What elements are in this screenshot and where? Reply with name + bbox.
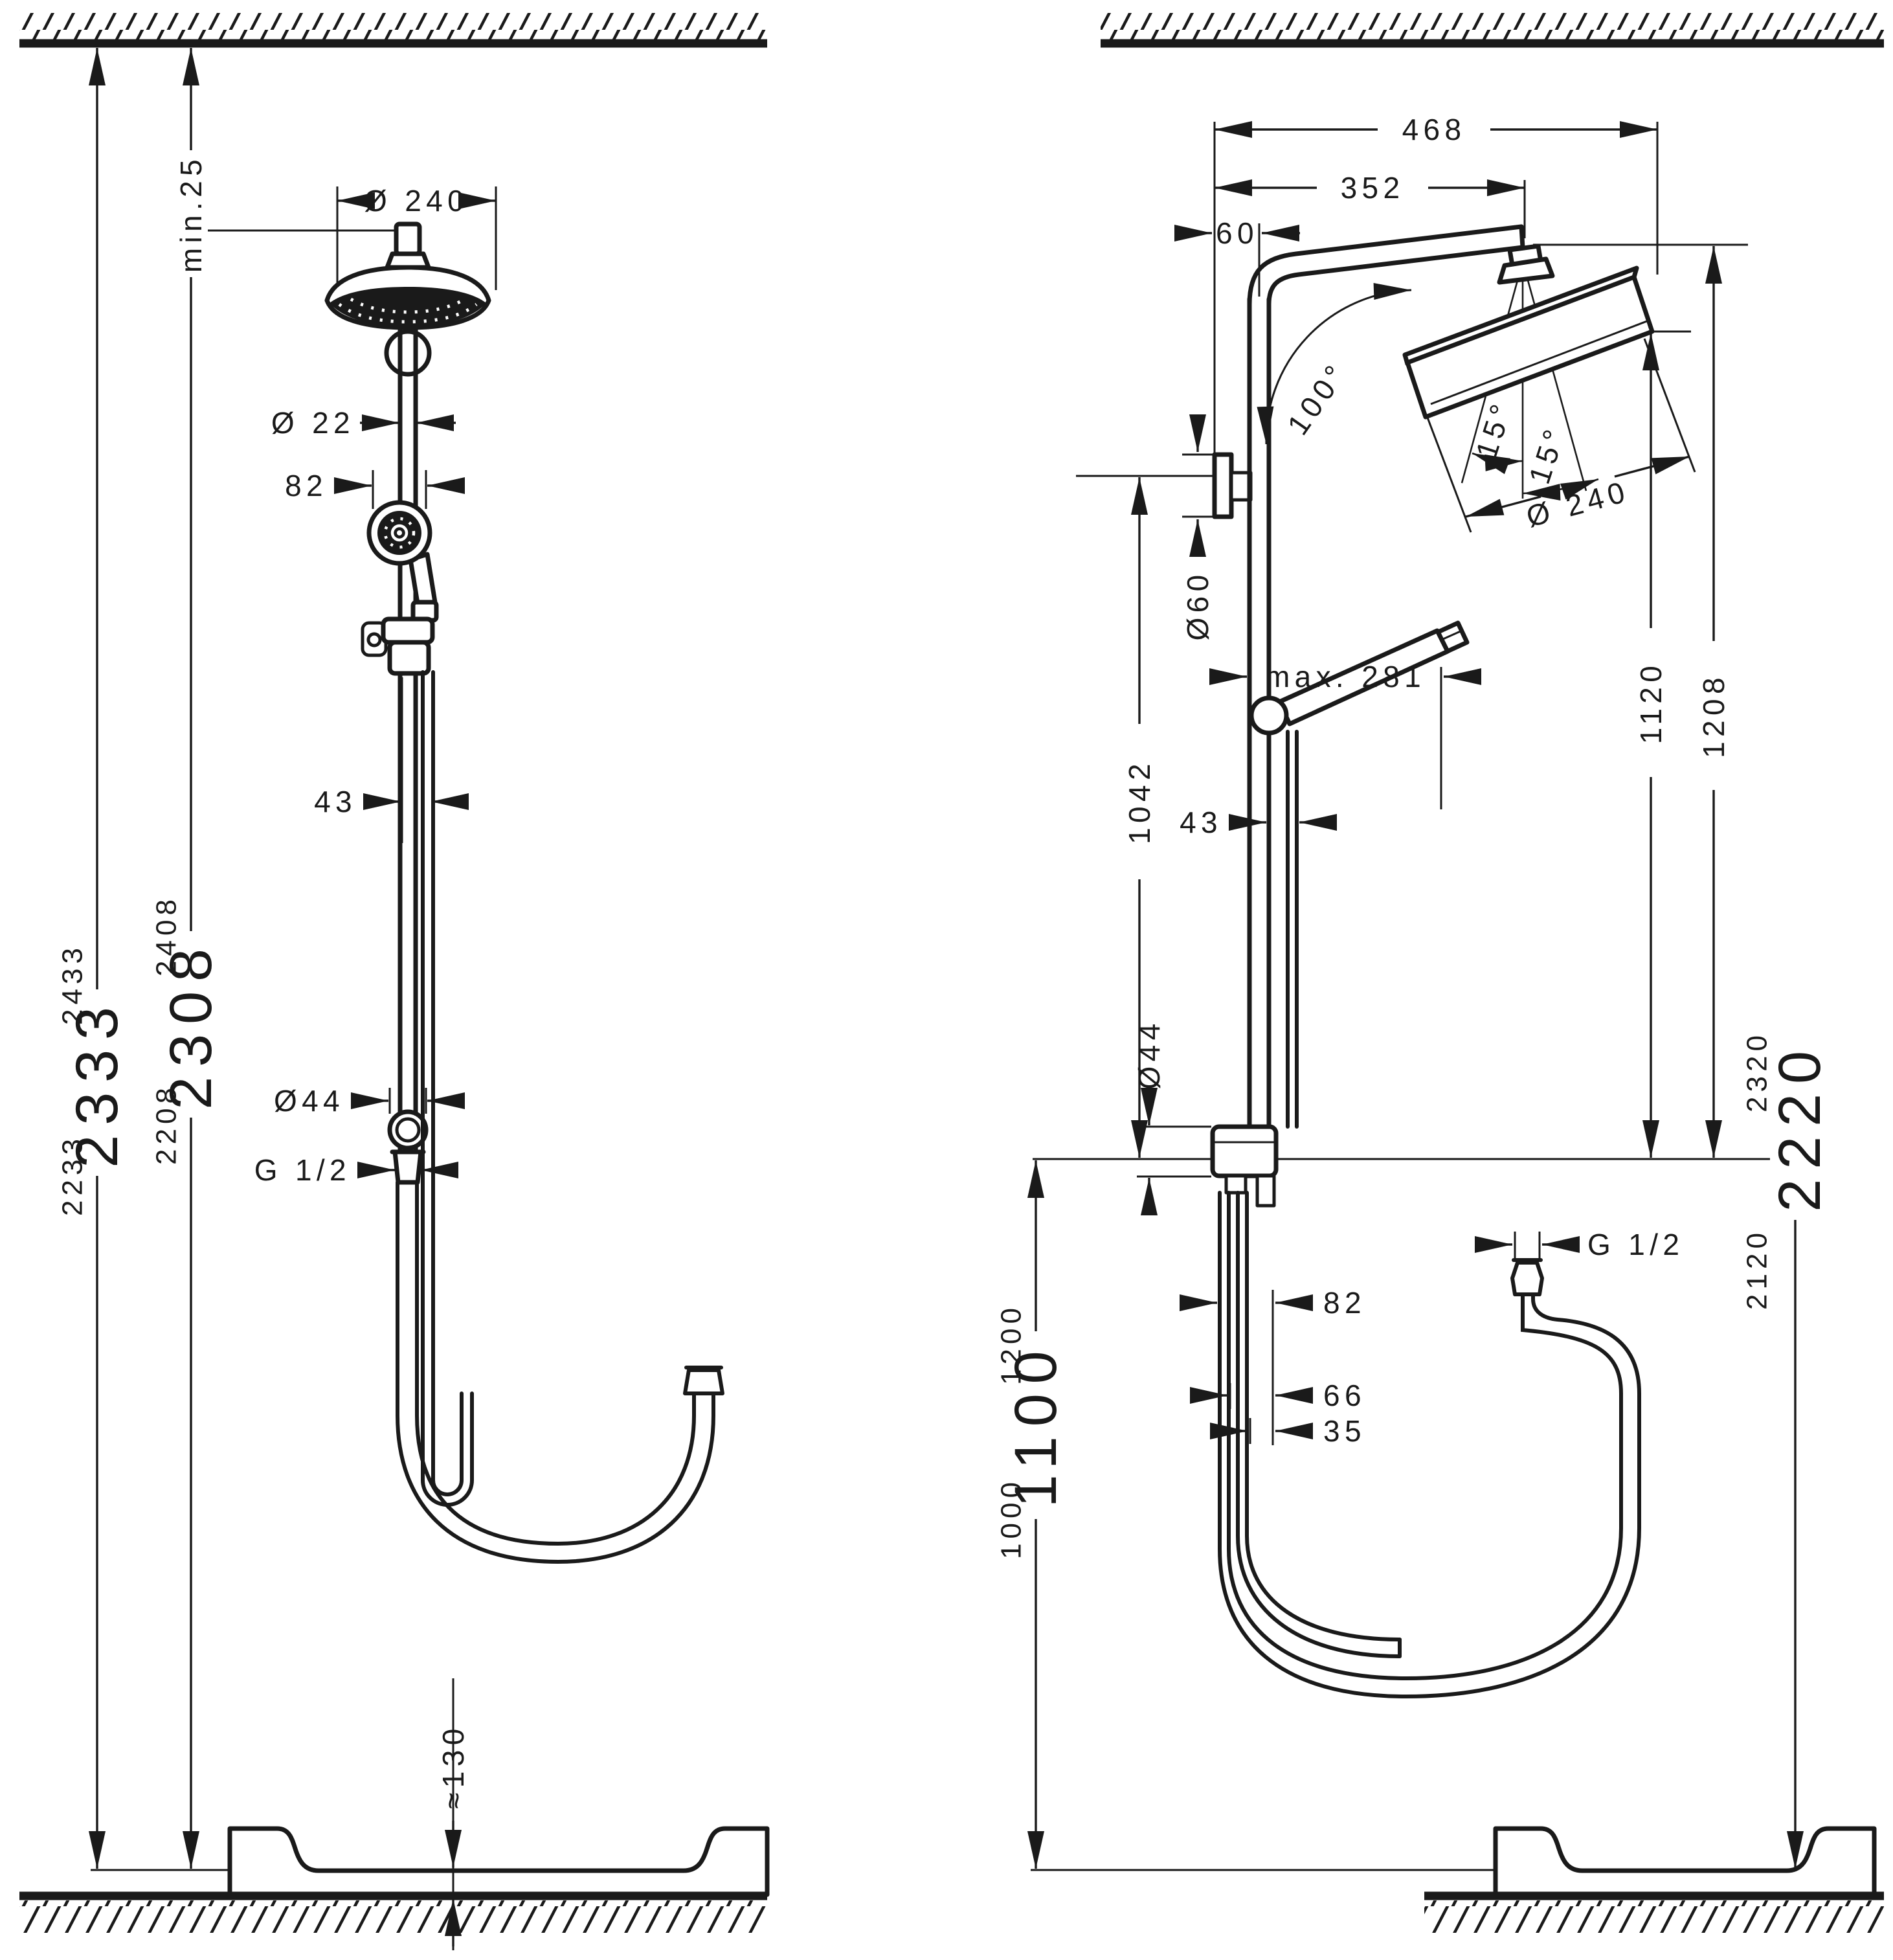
dim-label-43-right: 43 <box>1180 805 1222 839</box>
shower-system-dimension-drawing: min.25 Ø 240 Ø 22 82 43 Ø44 G 1/2 ≈130 2… <box>0 0 1893 1960</box>
dim-label-43-left: 43 <box>314 785 357 818</box>
hose-coupling-inner <box>397 1119 419 1141</box>
dim-label-66: 66 <box>1323 1379 1366 1412</box>
box-seal <box>1226 1176 1246 1193</box>
dim-label-dia240-left: Ø 240 <box>364 184 469 218</box>
ceiling-left <box>19 13 767 43</box>
wall-bracket <box>386 332 429 374</box>
dim-label-g12-right: G 1/2 <box>1587 1228 1684 1261</box>
arm-bottom-edge <box>1269 247 1523 304</box>
dim-label-2233: 2233 <box>57 1134 89 1216</box>
dim-label-468: 468 <box>1402 113 1466 146</box>
ceiling-right <box>1101 13 1884 43</box>
dim-label-100deg: 100° <box>1281 355 1354 441</box>
connection-box <box>1213 1127 1276 1176</box>
dim-label-max281: max. 281 <box>1265 660 1426 693</box>
hose-end-fitting <box>685 1370 722 1393</box>
hose-end-fitting-right <box>1512 1263 1542 1294</box>
dim-label-dia22: Ø 22 <box>271 406 355 440</box>
left-view-shower-system <box>327 224 722 1562</box>
dim-label-35: 35 <box>1323 1414 1366 1448</box>
dim-label-1042: 1042 <box>1123 759 1156 844</box>
dim-label-2220: 2220 <box>1767 1041 1833 1212</box>
floor-left <box>19 1829 767 1933</box>
dim-label-dia60: Ø60 <box>1181 570 1215 640</box>
dim-label-1208: 1208 <box>1697 673 1731 758</box>
dim-label-1120: 1120 <box>1634 661 1668 744</box>
shower-tray-right <box>1495 1829 1874 1895</box>
holder-knob-side <box>1251 698 1286 733</box>
head-joint-cone <box>1499 259 1552 282</box>
hose-loop-narrow-inner <box>433 672 462 1494</box>
hose-loop-narrow-outer <box>423 672 472 1505</box>
wall-escutcheon <box>1215 455 1231 517</box>
head-plate-body <box>1407 277 1652 417</box>
holder-lower <box>390 642 429 673</box>
g12-nut <box>395 1152 421 1182</box>
dim-label-130: ≈130 <box>436 1724 470 1808</box>
dim-label-2208: 2208 <box>151 1083 183 1165</box>
labels: min.25 Ø 240 Ø 22 82 43 Ø44 G 1/2 ≈130 2… <box>57 113 1833 1809</box>
dim-label-82-right: 82 <box>1323 1286 1366 1320</box>
dim-label-352: 352 <box>1341 171 1405 205</box>
ball-joint <box>396 224 420 254</box>
dim-label-15deg-right: 15° <box>1522 421 1573 488</box>
dim-label-g12-left: G 1/2 <box>254 1153 351 1187</box>
dim-label-dia44-left: Ø44 <box>274 1084 344 1118</box>
hose-loop-right-outer <box>1220 1193 1639 1696</box>
dim-label-1000: 1000 <box>996 1478 1027 1559</box>
dim-label-2120: 2120 <box>1742 1228 1773 1310</box>
holder-upper <box>383 619 432 642</box>
box-outlet-stub <box>1257 1176 1274 1206</box>
right-view-shower-system <box>1213 227 1652 1696</box>
holder-screw <box>368 634 380 646</box>
dim-label-min25: min.25 <box>174 155 208 273</box>
left-view-dimensions <box>97 48 496 1950</box>
shower-tray-left <box>230 1829 767 1895</box>
dim-label-60: 60 <box>1216 216 1259 250</box>
floor-right <box>1031 1829 1884 1933</box>
dim-label-82-left: 82 <box>285 469 328 502</box>
dim-label-15deg-left: 15° <box>1469 396 1519 462</box>
hose-loop-right-inner <box>1229 1193 1621 1678</box>
dim-label-dia44-right: Ø44 <box>1132 1019 1166 1089</box>
